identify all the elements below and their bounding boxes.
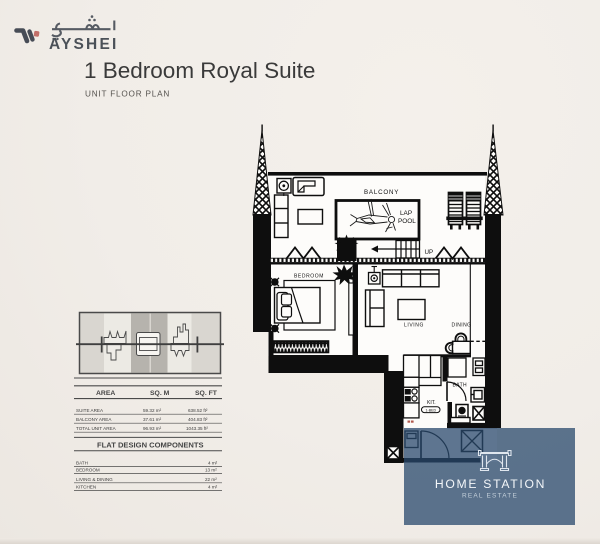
svg-text:404.83 ft²: 404.83 ft² [188, 417, 208, 422]
svg-text:4 m²: 4 m² [208, 485, 218, 490]
svg-text:REAL ESTATE: REAL ESTATE [462, 492, 518, 499]
svg-text:LIVING & DINING: LIVING & DINING [76, 477, 113, 482]
svg-text:HOME STATION: HOME STATION [435, 477, 546, 491]
svg-text:1043.35 ft²: 1043.35 ft² [186, 426, 208, 431]
svg-text:96.93 m²: 96.93 m² [143, 426, 162, 431]
svg-text:638.52 ft²: 638.52 ft² [188, 408, 208, 413]
svg-text:TOTAL UNIT AREA: TOTAL UNIT AREA [76, 426, 117, 431]
svg-text:37.61 m²: 37.61 m² [143, 417, 162, 422]
svg-text:59.32 m²: 59.32 m² [143, 408, 162, 413]
svg-text:BEDROOM: BEDROOM [76, 468, 100, 473]
svg-text:22 m²: 22 m² [205, 477, 217, 482]
svg-text:4 m²: 4 m² [208, 461, 218, 466]
svg-text:13 m²: 13 m² [205, 468, 217, 473]
svg-text:SQ. M: SQ. M [150, 390, 170, 397]
svg-text:BATH: BATH [76, 461, 88, 466]
svg-text:SUITE AREA: SUITE AREA [76, 408, 104, 413]
svg-text:KITCHEN: KITCHEN [76, 485, 96, 490]
svg-text:SQ. FT: SQ. FT [195, 390, 218, 397]
svg-text:AREA: AREA [96, 390, 115, 397]
svg-text:BALCONY AREA: BALCONY AREA [76, 417, 112, 422]
svg-text:FLAT DESIGN COMPONENTS: FLAT DESIGN COMPONENTS [97, 441, 204, 450]
